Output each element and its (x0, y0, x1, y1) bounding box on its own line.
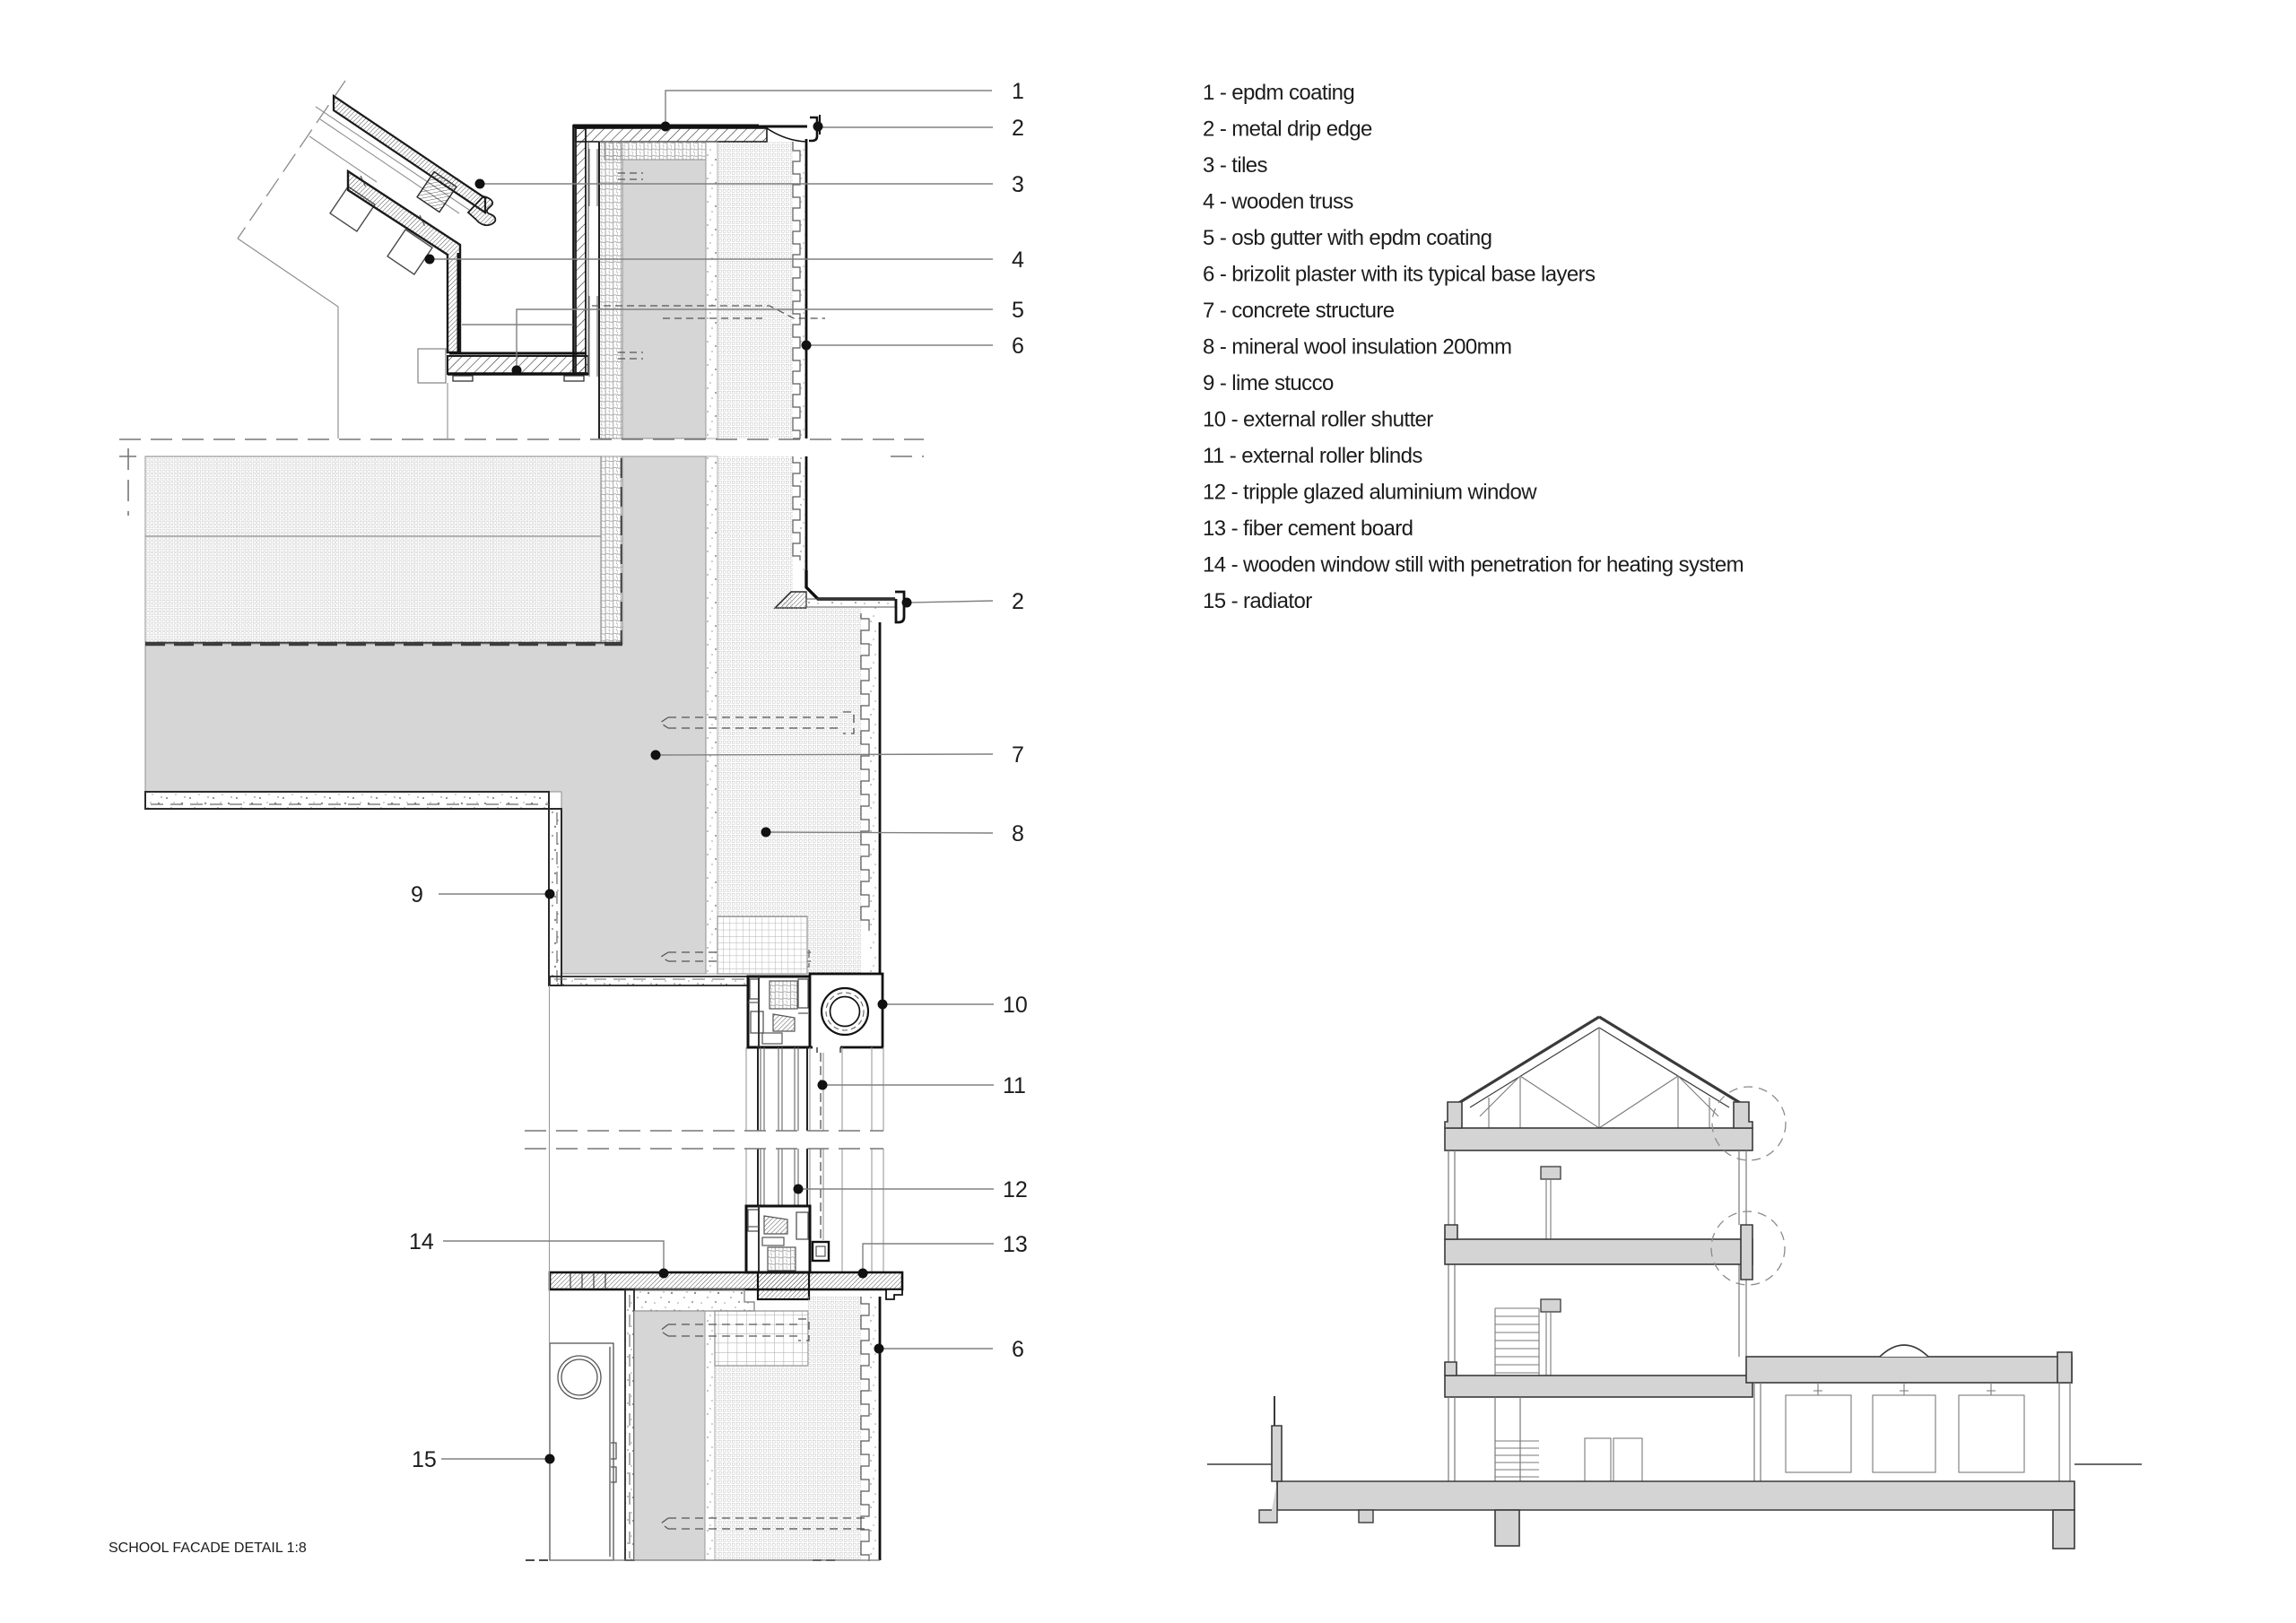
svg-text:2: 2 (1012, 589, 1024, 614)
svg-text:10: 10 (1003, 993, 1028, 1018)
svg-text:6: 6 (1012, 1337, 1024, 1362)
svg-text:2: 2 (1012, 116, 1024, 141)
svg-text:7: 7 (1012, 742, 1024, 768)
svg-text:8: 8 (1012, 821, 1024, 846)
svg-text:5 - osb gutter with epdm coati: 5 - osb gutter with epdm coating (1203, 226, 1492, 250)
svg-text:15 - radiator: 15 - radiator (1203, 589, 1312, 613)
svg-text:15: 15 (412, 1447, 437, 1472)
svg-text:13 - fiber cement board: 13 - fiber cement board (1203, 516, 1413, 541)
svg-text:8 - mineral wool insulation 20: 8 - mineral wool insulation 200mm (1203, 335, 1511, 360)
svg-text:6: 6 (1012, 334, 1024, 359)
svg-text:2 - metal drip edge: 2 - metal drip edge (1203, 117, 1372, 142)
svg-text:1 - epdm coating: 1 - epdm coating (1203, 81, 1354, 105)
svg-text:14: 14 (409, 1229, 434, 1254)
svg-text:6 - brizolit plaster with its: 6 - brizolit plaster with its typical ba… (1203, 263, 1596, 287)
svg-text:13: 13 (1003, 1232, 1028, 1257)
svg-text:12: 12 (1003, 1177, 1028, 1202)
svg-text:4 - wooden truss: 4 - wooden truss (1203, 190, 1353, 214)
svg-text:5: 5 (1012, 298, 1024, 323)
svg-text:10 - external roller shutter: 10 - external roller shutter (1203, 408, 1433, 432)
svg-text:4: 4 (1012, 247, 1024, 273)
svg-text:SCHOOL FACADE DETAIL 1:8: SCHOOL FACADE DETAIL 1:8 (109, 1541, 307, 1556)
svg-text:7 - concrete structure: 7 - concrete structure (1203, 299, 1395, 323)
svg-text:3: 3 (1012, 172, 1024, 197)
svg-text:1: 1 (1012, 79, 1024, 104)
svg-text:9: 9 (411, 882, 423, 907)
svg-text:9 - lime stucco: 9 - lime stucco (1203, 371, 1334, 395)
svg-text:3 - tiles: 3 - tiles (1203, 153, 1268, 178)
svg-text:12 - tripple glazed aluminium: 12 - tripple glazed aluminium window (1203, 481, 1537, 505)
svg-text:11 - external roller blinds: 11 - external roller blinds (1203, 444, 1422, 468)
svg-text:14 - wooden window still with: 14 - wooden window still with penetratio… (1203, 553, 1744, 577)
svg-text:11: 11 (1003, 1073, 1026, 1098)
